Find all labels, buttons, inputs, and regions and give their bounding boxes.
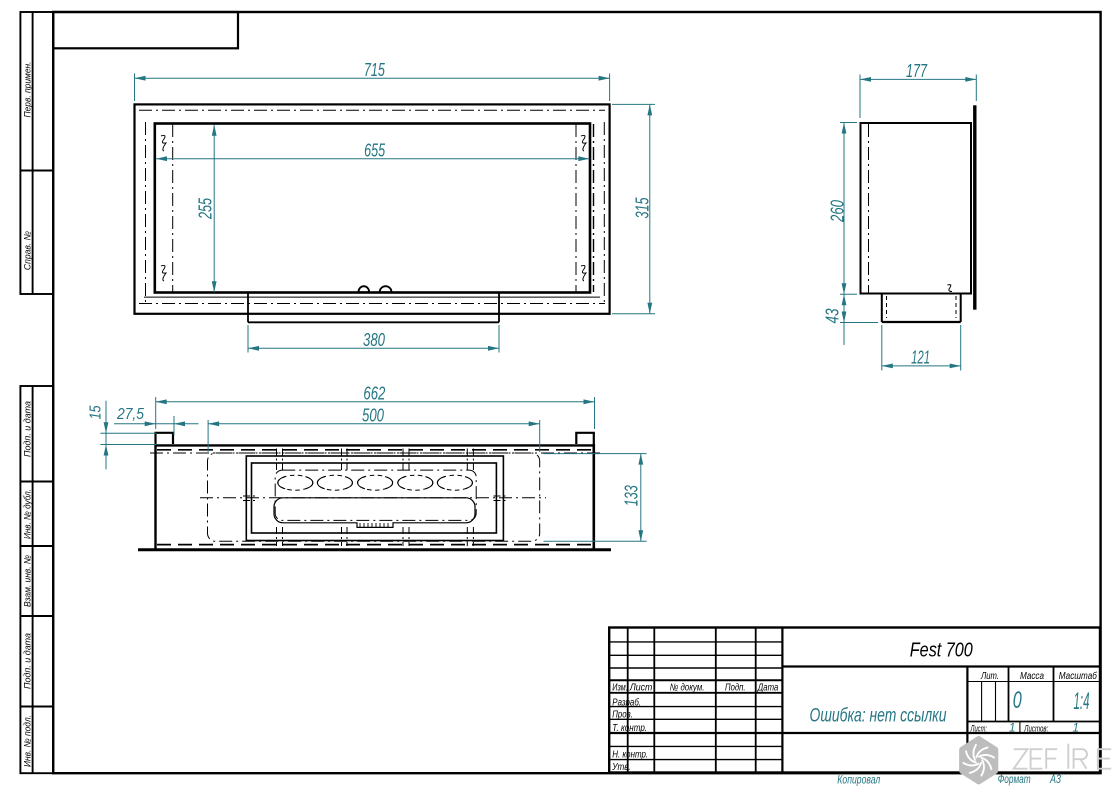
svg-text:177: 177 [906,61,928,81]
svg-text:15: 15 [88,405,105,419]
svg-text:Масса: Масса [1020,671,1044,682]
svg-text:1: 1 [1009,723,1015,735]
svg-text:715: 715 [364,60,386,80]
svg-text:Н. контр.: Н. контр. [612,750,648,761]
svg-text:Инв. № дубл.: Инв. № дубл. [23,489,34,539]
svg-text:Инв. № подл.: Инв. № подл. [23,715,34,767]
svg-text:Копировал: Копировал [837,775,880,786]
svg-text:133: 133 [622,485,642,506]
svg-text:260: 260 [828,200,848,223]
svg-text:№ докум.: № докум. [670,683,705,694]
svg-text:255: 255 [196,197,216,219]
svg-text:1:4: 1:4 [1074,688,1090,715]
svg-text:Масштаб: Масштаб [1059,670,1097,682]
svg-text:Лист:: Лист: [970,724,987,734]
svg-text:Пров.: Пров. [612,710,633,721]
svg-text:Взам. инв. №: Взам. инв. № [23,555,34,607]
svg-text:Утв.: Утв. [611,762,630,773]
svg-text:Подп. и дата: Подп. и дата [23,633,34,689]
svg-text:655: 655 [364,140,386,160]
svg-text:Подп. и дата: Подп. и дата [23,401,34,457]
svg-text:Справ. №: Справ. № [23,231,34,270]
svg-text:662: 662 [363,383,385,403]
svg-text:Перв. примен.: Перв. примен. [23,62,34,118]
svg-text:1: 1 [1073,723,1079,735]
svg-text:Листов:: Листов: [1024,724,1049,734]
svg-text:А3: А3 [1049,774,1061,786]
svg-text:Лист: Лист [629,683,652,694]
svg-text:121: 121 [911,347,930,367]
svg-text:500: 500 [362,405,384,425]
svg-text:Дата: Дата [757,683,779,694]
svg-text:Т. контр.: Т. контр. [612,723,647,734]
svg-text:Ошибка: нет ссылки: Ошибка: нет ссылки [810,706,947,727]
svg-text:Изм.: Изм. [612,683,627,694]
svg-text:43: 43 [823,309,843,324]
svg-text:315: 315 [633,197,653,219]
svg-text:Fest 700: Fest 700 [910,640,973,662]
svg-text:380: 380 [363,330,385,350]
svg-text:Разраб.: Разраб. [612,697,641,709]
svg-text:Лит.: Лит. [980,671,999,682]
svg-text:27,5: 27,5 [116,406,144,423]
svg-text:Подп.: Подп. [725,683,746,694]
svg-text:Формат: Формат [998,774,1031,786]
svg-text:0: 0 [1013,687,1022,714]
